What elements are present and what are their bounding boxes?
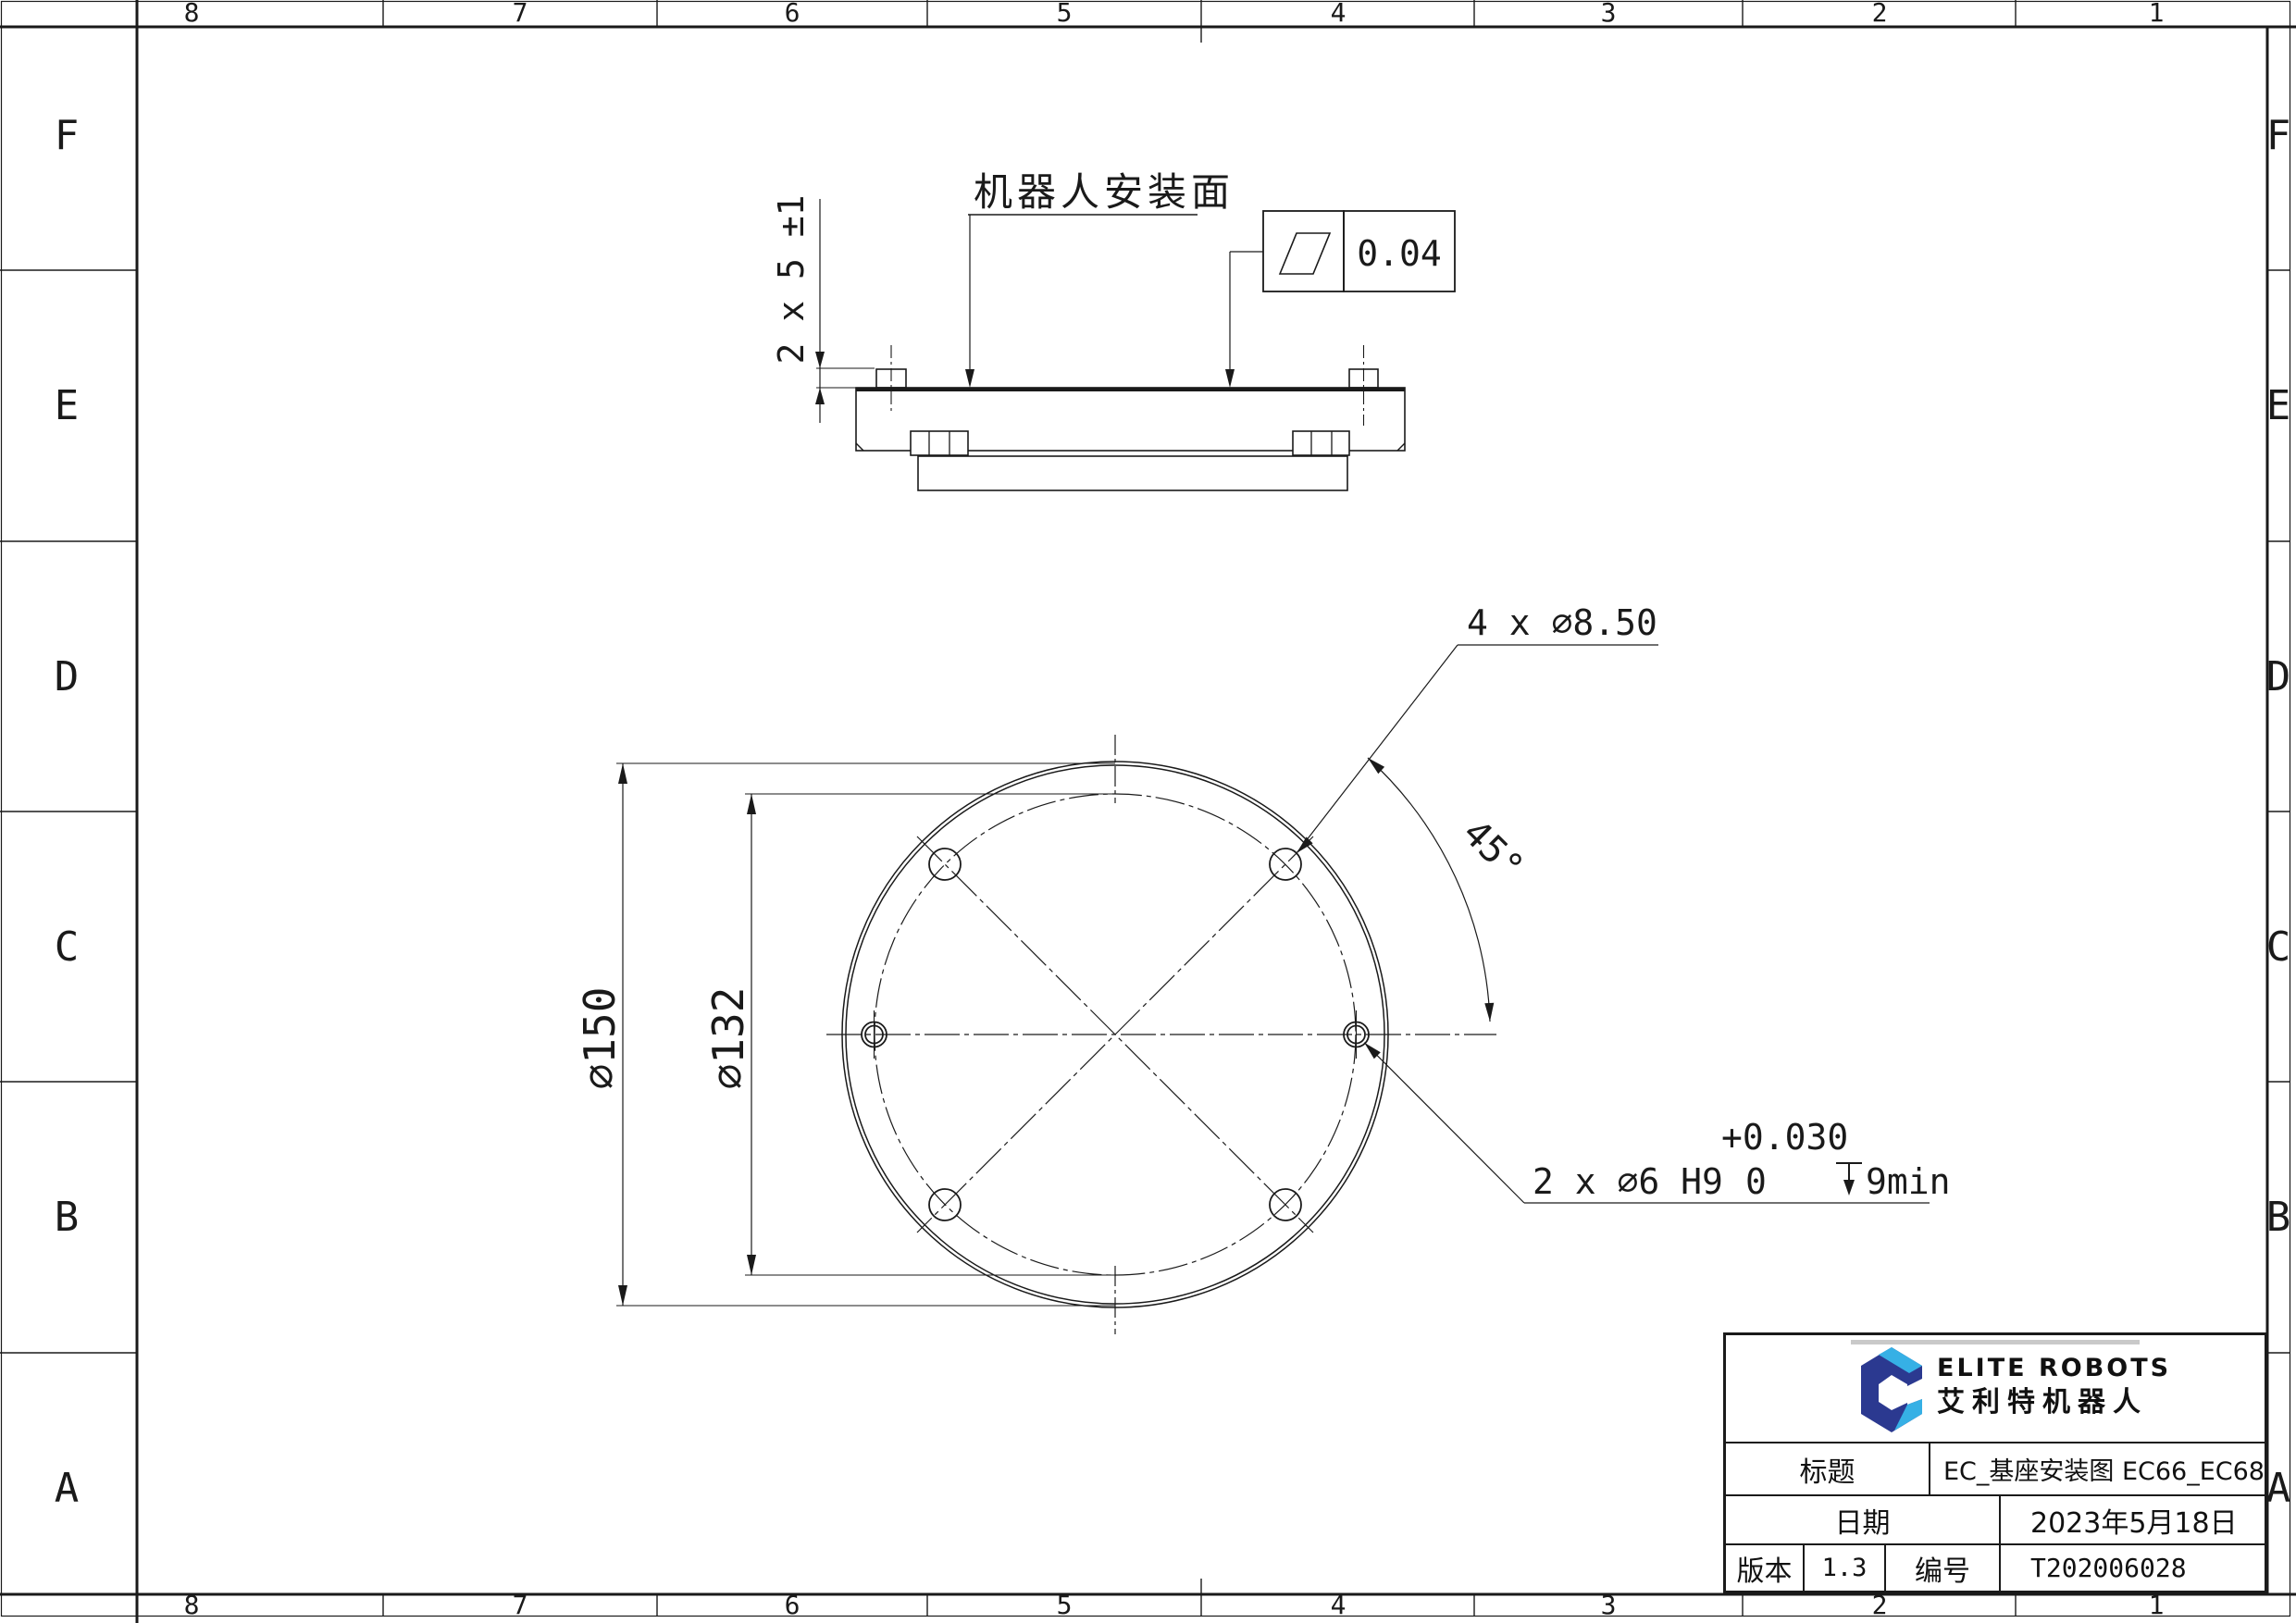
date-value: 2023年5月18日 xyxy=(1999,1496,2265,1543)
zone-numbers-top: 8 7 6 5 4 3 2 1 xyxy=(184,0,2165,28)
pin-holes-dim-text: 2 x ⌀6 H9 xyxy=(1533,1161,1723,1202)
pin-holes-tol-upper: +0.030 xyxy=(1721,1117,1848,1158)
title-block: ELITE ROBOTS 艾利特机器人 标题 EC_基座安装图 EC66_EC6… xyxy=(1723,1332,2267,1593)
number-value: T202006028 xyxy=(1999,1545,2265,1591)
pin-holes-callout: 2 x ⌀6 H9 0 +0.030 9min xyxy=(1364,1043,1950,1203)
number-label: 编号 xyxy=(1884,1545,1999,1591)
bolt-holes-dim-text: 4 x ⌀8.50 xyxy=(1467,602,1657,643)
brand-name-en: ELITE ROBOTS xyxy=(1937,1356,2171,1381)
version-row: 版本 1.3 编号 T202006028 xyxy=(1726,1543,2265,1591)
zone-col-label: 7 xyxy=(513,1590,528,1620)
flatness-frame: 0.04 xyxy=(1225,211,1455,388)
flatness-value: 0.04 xyxy=(1357,233,1442,274)
outer-dia-text: ⌀150 xyxy=(575,987,625,1090)
title-label: 标题 xyxy=(1726,1443,1929,1494)
zone-col-label: 6 xyxy=(785,0,800,28)
zone-col-label: 2 xyxy=(1872,1590,1888,1620)
zone-row-label: A xyxy=(55,1465,80,1512)
zone-col-label: 4 xyxy=(1331,1590,1347,1620)
zone-col-label: 8 xyxy=(184,1590,200,1620)
drawing-sheet: 8 7 6 5 4 3 2 1 8 7 6 5 4 3 2 1 F E D C … xyxy=(0,0,2296,1623)
bolt-head-right xyxy=(1293,431,1349,455)
zone-row-label: C xyxy=(2266,923,2291,971)
side-view: 机器人安装面 0.04 2 x 5 ±1 xyxy=(771,169,1455,490)
pin-hole-west xyxy=(862,1010,887,1059)
brand-text: ELITE ROBOTS 艾利特机器人 xyxy=(1937,1356,2171,1417)
brand-rule xyxy=(1851,1340,2140,1344)
zone-row-label: D xyxy=(2266,653,2291,700)
zone-ticks-left xyxy=(0,270,137,1353)
bolt-hole xyxy=(929,849,961,880)
zone-col-label: 6 xyxy=(785,1590,800,1620)
zone-row-label: D xyxy=(55,653,80,700)
zone-row-label: E xyxy=(55,382,80,429)
zone-row-label: B xyxy=(55,1194,80,1241)
zone-col-label: 8 xyxy=(184,0,200,28)
version-label: 版本 xyxy=(1726,1545,1803,1591)
title-block-logo-row: ELITE ROBOTS 艾利特机器人 xyxy=(1726,1335,2265,1442)
leader-arrow xyxy=(965,369,974,388)
zone-col-label: 7 xyxy=(513,0,528,28)
version-value: 1.3 xyxy=(1803,1545,1884,1591)
bolt-circle-dia-text: ⌀132 xyxy=(703,987,753,1090)
title-value: EC_基座安装图 EC66_EC68 xyxy=(1929,1443,2265,1494)
bolt-holes-callout: 4 x ⌀8.50 xyxy=(1297,602,1658,853)
zone-col-label: 1 xyxy=(2149,0,2165,28)
zone-col-label: 3 xyxy=(1601,0,1617,28)
zone-col-label: 1 xyxy=(2149,1590,2165,1620)
pin-holes-tol-nominal: 0 xyxy=(1745,1161,1767,1202)
zone-row-label: B xyxy=(2266,1194,2291,1241)
mount-face-label: 机器人安装面 xyxy=(974,169,1235,215)
angle-dimension: 45° xyxy=(1368,758,1532,1022)
flatness-symbol-icon xyxy=(1280,233,1330,274)
pin-height-dim-text: 2 x 5 ±1 xyxy=(771,194,812,364)
pin-holes-depth-text: 9min xyxy=(1866,1161,1951,1202)
depth-symbol-icon xyxy=(1836,1163,1862,1196)
brand-name-cn: 艾利特机器人 xyxy=(1937,1389,2171,1417)
zone-row-label: F xyxy=(55,112,80,159)
elite-cube-icon xyxy=(1861,1347,1922,1432)
zone-row-label: A xyxy=(2266,1465,2291,1512)
angle-dim-text: 45° xyxy=(1454,811,1532,889)
zone-col-label: 4 xyxy=(1331,0,1347,28)
bolt-head-left xyxy=(911,431,968,455)
plan-view: ⌀150 ⌀132 4 x ⌀8.50 45° xyxy=(575,602,1951,1334)
zone-ticks-top xyxy=(383,0,2016,43)
zone-row-label: E xyxy=(2266,382,2291,429)
zone-row-label: C xyxy=(55,923,80,971)
title-row: 标题 EC_基座安装图 EC66_EC68 xyxy=(1726,1442,2265,1494)
zone-col-label: 5 xyxy=(1057,0,1073,28)
zone-col-label: 3 xyxy=(1601,1590,1617,1620)
date-label: 日期 xyxy=(1726,1496,1999,1543)
leader-arrow xyxy=(1225,369,1235,388)
date-row: 日期 2023年5月18日 xyxy=(1726,1494,2265,1543)
base-plate xyxy=(918,456,1347,490)
zone-col-label: 2 xyxy=(1872,0,1888,28)
zone-col-label: 5 xyxy=(1057,1590,1073,1620)
zone-row-label: F xyxy=(2266,112,2291,159)
pin-hole-east xyxy=(1344,1010,1369,1059)
zone-ticks-right xyxy=(2267,270,2290,1353)
